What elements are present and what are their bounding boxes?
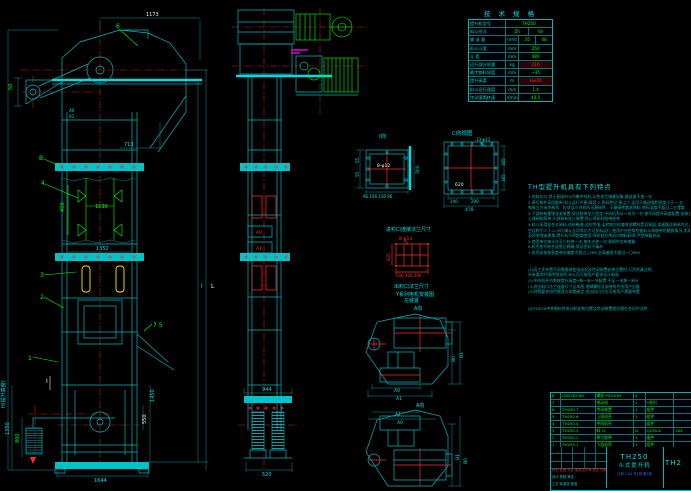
dim-label: 1450 (150, 389, 156, 402)
side-elevation-view (232, 8, 368, 472)
bom-cell: 3 (551, 428, 561, 434)
dim-label: 200 (471, 199, 479, 204)
title-block-name-zone: TH250 斗式提升机 比例 1:25 共1张 第1张 (606, 447, 664, 488)
bom-cell: 电动机 (596, 400, 634, 406)
spec-cell: TH250 (506, 20, 552, 27)
spec-cell: 料斗运行速度 (469, 86, 506, 93)
bom-cell (674, 414, 691, 420)
dim-label: C向视图 (452, 129, 473, 137)
bom-cell (634, 421, 646, 427)
bom-cell (674, 421, 691, 427)
spec-row: 运行部分质量kg216 (469, 60, 552, 68)
detail-i-view (356, 146, 414, 194)
spec-cell: m/s (506, 86, 519, 93)
bom-cell: N (634, 428, 646, 434)
spec-cell: ~35 (519, 69, 552, 76)
bom-row: 8GB5782-86螺栓 M20×654 (551, 393, 691, 400)
dim-label: 620 (455, 182, 464, 188)
spec-row: 斗 距mm480 (469, 52, 552, 60)
cad-drawing-canvas: 1173650A0A1B445011307131352327 51I135080… (0, 0, 691, 491)
spec-cell: 输 送 量 (469, 36, 506, 43)
dim-label: A0 (69, 108, 75, 113)
bom-row: 3TH250.3料 斗NQ235-A204 (551, 428, 691, 435)
dim-label: A1 (396, 396, 402, 402)
dim-label: A1 (69, 114, 75, 119)
bom-cell: 组件 (646, 407, 675, 413)
drawing-number: TH2 (663, 459, 691, 467)
dim-label: B0 (451, 356, 457, 362)
spec-cell: Zh (506, 28, 530, 35)
bom-row: 7电动机1Y系列 (551, 400, 691, 407)
dim-label: 1173 (146, 12, 159, 18)
bom-cell: 1 (634, 400, 646, 406)
note-line: 吨每立方米的粉状、粒状及小块状的无磨琢性、半磨琢性散状物料,物料温度不超过二五零… (528, 205, 690, 211)
spec-cell: 35 (519, 36, 536, 43)
bom-cell: 组件 (646, 421, 675, 427)
bom-row: 2TH250.2牵引胶带1备件 (551, 435, 691, 442)
technical-spec-table: 技 术 规 格 提升机型号TH250料斗形式ZhSh输 送 量m³/h3548料… (468, 8, 553, 102)
bom-cell: 1 (634, 407, 646, 413)
bom-cell (561, 400, 595, 406)
dim-label: 55 (355, 171, 360, 177)
spec-cell: 运行部分质量 (469, 61, 506, 68)
bom-cell: TH250.3 (561, 428, 595, 434)
dim-label: 520 (262, 472, 272, 478)
spec-row: 提升高度mH≤30 (469, 76, 552, 84)
bom-cell: 5 (551, 414, 561, 420)
spec-row: 提升机型号TH250 (469, 20, 552, 27)
dim-label: 944 (262, 387, 272, 393)
dim-label: B1 (455, 454, 461, 460)
bom-cell: 螺栓 M20×65 (596, 393, 634, 399)
spec-row: 料斗斗宽mm250 (469, 44, 552, 52)
dim-label: 1 (28, 355, 32, 362)
dim-label: A0 (256, 230, 262, 236)
staff-row-1: 设计 校核 审定 (552, 474, 574, 479)
detail-motor-view-top (366, 314, 462, 398)
dim-label: 165 (501, 158, 506, 166)
dim-label: 713 (124, 142, 134, 148)
dim-label: A1 (395, 412, 401, 418)
note-line: 4.料斗采用混合式卸料,进料畅通,适应性强,运转前应检查各部螺栓是否紧固,减速器… (528, 222, 690, 228)
dim-label: I (46, 378, 48, 385)
dim-label: l (201, 283, 203, 290)
product-model: TH250 (606, 453, 663, 461)
dim-label: 425 (386, 253, 391, 261)
dim-label: 7 5 (153, 322, 163, 329)
spec-cell: 216 (519, 61, 552, 68)
bom-cell (674, 400, 691, 406)
title-block-revision-zone: 标记 处数 分区 更改文件号 签名 日期 设计 校核 审定 工艺 标准化 批准 (551, 447, 607, 488)
dim-label: 800 (15, 433, 21, 443)
dim-label: 450 (60, 202, 66, 212)
detail-motor-view-bottom (366, 410, 462, 486)
spec-row: 传动滚筒转速r/min44.5 (469, 93, 552, 101)
bom-row: 6TH250.7传动装置1组件 (551, 407, 691, 414)
spec-cell: 1.4 (519, 86, 552, 93)
dim-label: A向 (416, 402, 424, 409)
bom-cell (674, 435, 691, 441)
note-line: (5)TH250中央装料时电动机安装位置及传动装置旋向需在合同中注明 (528, 306, 690, 312)
bom-cell: 中间机壳 (596, 421, 634, 427)
revision-row-labels: 标记 处数 分区 更改文件号 签名 日期 (552, 467, 606, 472)
spec-cell: mm (506, 53, 519, 60)
bom-cell: TH250.4 (561, 421, 595, 427)
dim-label: 3 (40, 272, 44, 279)
detail-inlet-flange (392, 240, 429, 274)
dim-label: 478 (465, 207, 474, 213)
staff-row-2: 工艺 标准化 批准 (552, 481, 577, 486)
bom-cell: 牵引胶带 (596, 435, 634, 441)
spec-cell: 最大物料块度 (469, 69, 506, 76)
spec-cell: m (506, 77, 519, 84)
spec-row: 料斗运行速度m/s1.4 (469, 85, 552, 93)
bom-cell: 传动装置 (596, 407, 634, 413)
notes-heading: TH型提升机具有下列特点 (528, 182, 690, 191)
dim-label: A0 (394, 388, 400, 394)
spec-cell: 44.5 (519, 94, 552, 101)
dim-label: I向 (379, 132, 386, 140)
dim-label: 96 156 156 96 (363, 194, 393, 199)
bom-cell: GB5782-86 (561, 393, 595, 399)
bom-row: 5TH250.6上段机壳1组件 (551, 414, 691, 421)
bom-cell (674, 393, 691, 399)
spec-row: 输 送 量m³/h3548 (469, 35, 552, 43)
dim-label: B0 (463, 458, 469, 464)
spec-cell: Sh (529, 28, 552, 35)
spec-cell: 料斗形式 (469, 28, 506, 35)
title-block: 标记 处数 分区 更改文件号 签名 日期 设计 校核 审定 工艺 标准化 批准 … (550, 447, 691, 491)
dim-label: 8-φ12 (377, 163, 390, 169)
bom-cell: 2 (551, 435, 561, 441)
dim-label: A1 (256, 246, 262, 252)
dim-label: 6 (116, 23, 120, 30)
dim-label: 2 (40, 294, 44, 301)
bom-cell: 4 (551, 421, 561, 427)
dim-label: A向 (414, 305, 422, 312)
dim-label: 200 300 200 (396, 273, 422, 278)
dim-label: 1352 (96, 246, 109, 252)
bom-cell: TH250.7 (561, 407, 595, 413)
bom-cell: TH250.6 (561, 414, 595, 420)
bom-cell: 1 (634, 435, 646, 441)
bom-cell: Q235-A (646, 428, 675, 434)
bom-cell: 上段机壳 (596, 414, 634, 420)
bom-cell: 4 (634, 393, 646, 399)
spec-cell: r/min (506, 94, 519, 101)
spec-cell: 斗 距 (469, 53, 506, 60)
dim-label: 240 (450, 199, 458, 204)
bom-cell: 备件 (646, 435, 675, 441)
dim-label: A0 (397, 420, 403, 426)
dim-label: 左装置 (404, 297, 419, 304)
bom-cell: 料 斗 (596, 428, 634, 434)
spec-row: 料斗形式ZhSh (469, 27, 552, 35)
dim-label: B (39, 155, 43, 162)
spec-cell: 250 (519, 45, 552, 52)
bom-cell: TH250.2 (561, 435, 595, 441)
bom-cell (674, 407, 691, 413)
spec-cell: 提升机型号 (469, 20, 506, 27)
dim-label: 出料口法兰尺寸 (394, 283, 429, 290)
spec-cell: 480 (519, 53, 552, 60)
dim-label: Y系列电机安装图 (395, 291, 434, 298)
spec-cell: 传动滚筒转速 (469, 94, 506, 101)
dim-label: L (211, 283, 215, 290)
dim-label: 55 (355, 157, 360, 163)
spec-row: 最大物料块度mm~35 (469, 68, 552, 76)
dim-label: B1 (459, 352, 465, 358)
dim-label: 进料口连接法兰尺寸 (386, 226, 431, 233)
dim-label: 1130 (95, 204, 108, 210)
spec-cell: 提升高度 (469, 77, 506, 84)
bom-cell: 1 (634, 414, 646, 420)
dim-label: 1350 (5, 422, 11, 435)
dim-label: 8-φ14 (399, 236, 412, 242)
bom-cell: 组件 (646, 414, 675, 420)
dim-label: 50 (8, 84, 14, 90)
spec-cell: 料斗斗宽 (469, 45, 506, 52)
dim-label: 550 (142, 414, 148, 424)
title-block-drawing-no-zone: TH2 (663, 447, 691, 488)
product-name: 斗式提升机 (606, 461, 663, 469)
spec-cell: mm (506, 45, 519, 52)
dim-label: 300 (415, 165, 421, 174)
dim-label: 4 (41, 180, 45, 187)
bom-cell: 8 (551, 393, 561, 399)
bom-cell (646, 393, 675, 399)
bom-cell: Y系列 (646, 400, 675, 406)
spec-cell: H≤30 (519, 77, 552, 84)
dim-label: 13-φ12 (476, 137, 491, 142)
spec-table-title: 技 术 规 格 (468, 8, 553, 18)
dim-label: 1644 (94, 478, 107, 484)
spec-table-grid: 提升机型号TH250料斗形式ZhSh输 送 量m³/h3548料斗斗宽mm250… (468, 19, 553, 102)
spec-cell: kg (506, 61, 519, 68)
spec-cell: 48 (536, 36, 552, 43)
notes-lines: 1.给料均匀,禁止直接向斗内集中给料,以免发生堵塞现象,输送量不变一台2.牵引构… (528, 194, 690, 311)
scale-strip: 比例 1:25 共1张 第1张 (606, 471, 663, 476)
notes-block: TH型提升机具有下列特点 1.给料均匀,禁止直接向斗内集中给料,以免发生堵塞现象… (528, 182, 690, 311)
dim-label: 165 (501, 174, 506, 182)
dim-label: H(提升高度) (0, 380, 7, 408)
bom-row: 4TH250.4中间机壳组件 (551, 421, 691, 428)
spec-cell: mm (506, 69, 519, 76)
bom-cell: 7 (551, 400, 561, 406)
bom-cell: 6 (551, 407, 561, 413)
spec-cell: m³/h (506, 36, 519, 43)
bom-cell: 204 (674, 428, 691, 434)
